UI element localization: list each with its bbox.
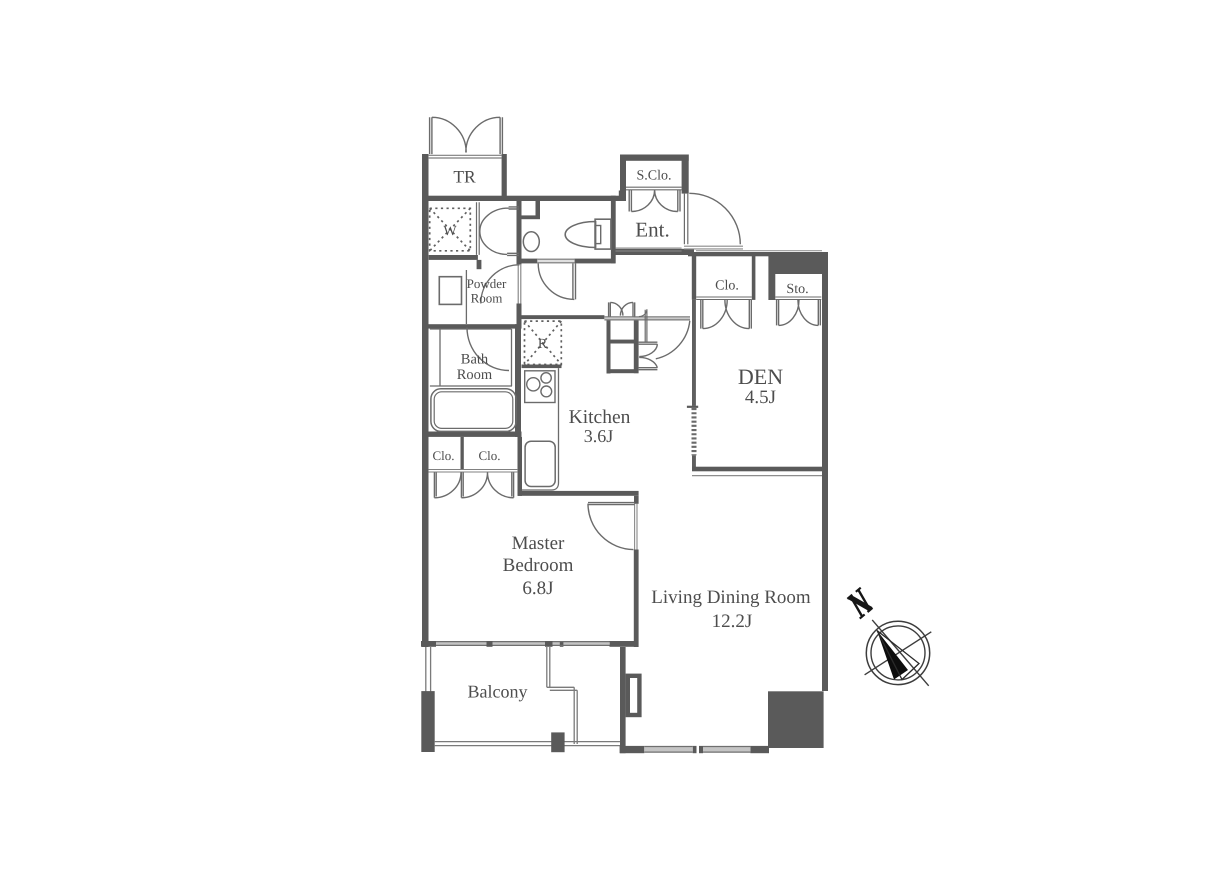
svg-text:S.Clo.: S.Clo. [636,169,671,184]
svg-text:3.6J: 3.6J [584,426,614,446]
svg-text:4.5J: 4.5J [745,387,776,408]
svg-text:12.2J: 12.2J [712,611,753,632]
svg-text:Clo.: Clo. [715,279,739,294]
svg-text:Living Dining Room: Living Dining Room [651,587,811,608]
svg-text:6.8J: 6.8J [522,578,553,599]
svg-text:Kitchen: Kitchen [569,407,631,428]
svg-text:Balcony: Balcony [468,682,528,702]
svg-text:W: W [443,224,457,239]
svg-text:Ent.: Ent. [635,218,669,242]
svg-text:Room: Room [471,291,503,306]
svg-text:Powder: Powder [467,276,507,291]
svg-text:R: R [538,337,548,352]
svg-text:Master: Master [512,533,565,554]
svg-text:DEN: DEN [738,364,783,389]
svg-text:Room: Room [457,367,493,383]
svg-text:Clo.: Clo. [432,448,454,463]
svg-text:Bedroom: Bedroom [503,555,574,576]
svg-text:Sto.: Sto. [786,282,808,297]
svg-text:Clo.: Clo. [478,448,500,463]
svg-text:Bath: Bath [461,352,489,368]
svg-text:TR: TR [453,167,476,187]
